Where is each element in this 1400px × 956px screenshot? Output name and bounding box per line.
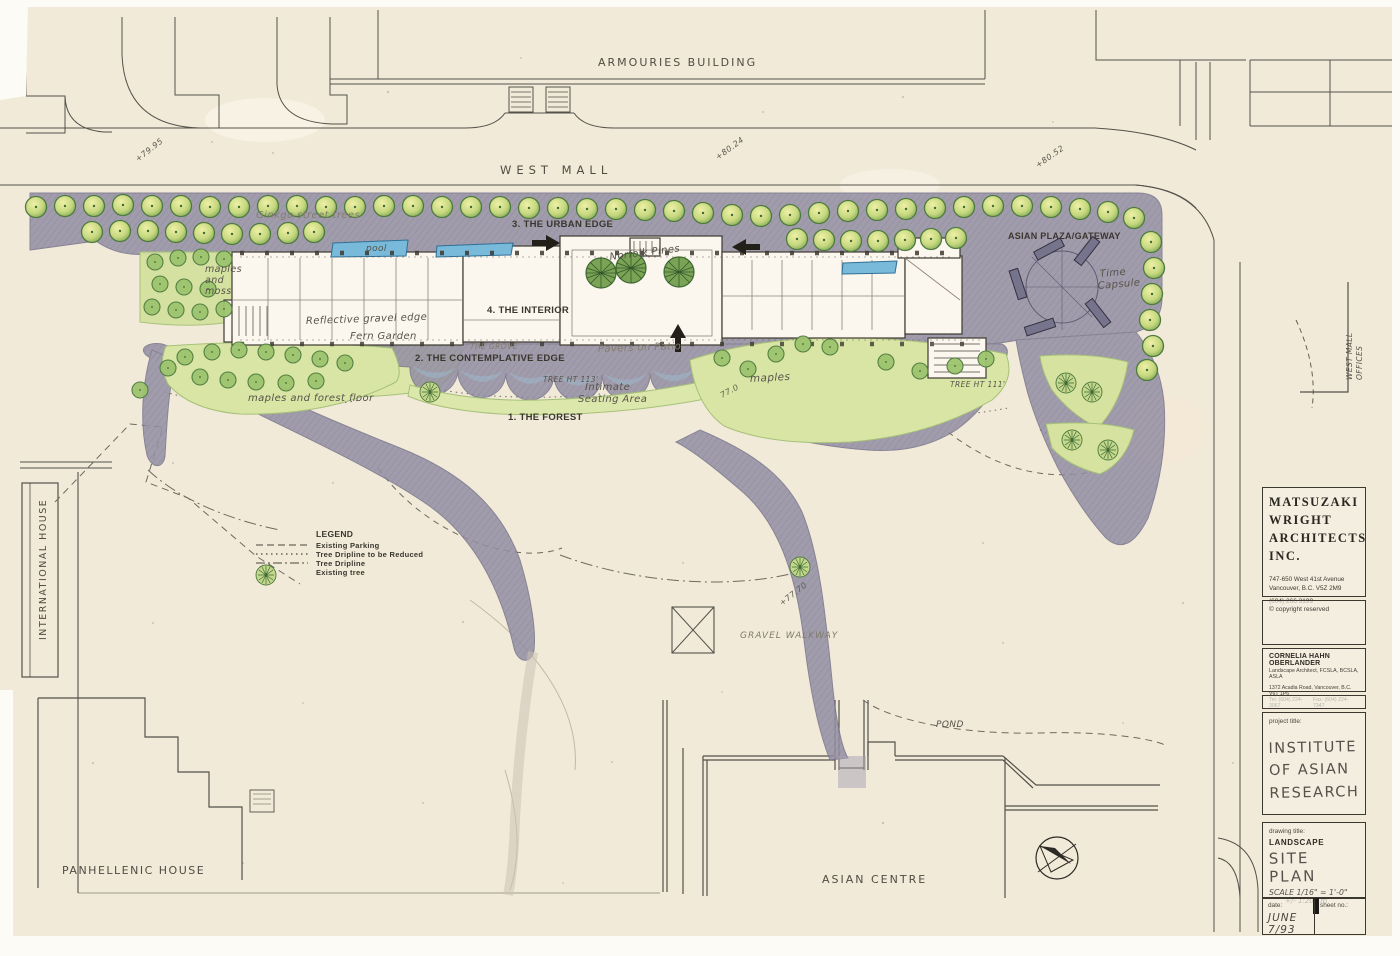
project-title-box: project title: INSTITUTE OF ASIAN RESEAR…	[1262, 712, 1366, 815]
label-west-mall-offices: OFFICES	[1355, 346, 1364, 380]
drawing-scale: SCALE 1/16" = 1'-0"	[1269, 888, 1359, 897]
label-fern-garden: Fern Garden	[350, 331, 417, 342]
label-contemplative-edge: 2. THE CONTEMPLATIVE EDGE	[415, 353, 565, 364]
plan-drawing: LEGEND Existing Parking Tree Dripline to…	[0, 0, 1400, 956]
legend-tree-icon	[256, 565, 276, 585]
sheet-number-label: sheet no.:	[1320, 902, 1360, 909]
label-intimate-seating: Seating Area	[578, 394, 647, 405]
spot-elevation: +79.95	[134, 136, 165, 163]
label-armouries-building: ARMOURIES BUILDING	[598, 56, 757, 69]
label-maples-moss: and	[205, 275, 225, 286]
firm-address-line: 747-650 West 41st Avenue	[1269, 575, 1359, 584]
label-intimate-seating: Intimate	[585, 382, 630, 393]
label-the-forest: 1. THE FOREST	[508, 412, 583, 423]
project-title-line: INSTITUTE	[1268, 736, 1358, 760]
label-gravel-walkway: GRAVEL WALKWAY	[740, 631, 839, 641]
architect-firm-box: MATSUZAKI WRIGHT ARCHITECTS INC. 747-650…	[1262, 487, 1366, 597]
firm-name-line: INC.	[1269, 547, 1359, 565]
label-tree-ht-111: TREE HT 111'	[950, 380, 1005, 389]
drawing-title-label: drawing title:	[1269, 828, 1359, 835]
plan-labels: ARMOURIES BUILDING WEST MALL Ginkgo stre…	[38, 56, 1364, 886]
project-title-label: project title:	[1269, 718, 1359, 725]
site-plan-sheet: LEGEND Existing Parking Tree Dripline to…	[0, 0, 1400, 956]
label-panhellenic-house: PANHELLENIC HOUSE	[62, 864, 205, 877]
drawing-title-box: drawing title: LANDSCAPE SITE PLAN SCALE…	[1262, 822, 1366, 898]
label-west-mall: WEST MALL	[500, 163, 612, 177]
label-asian-centre: ASIAN CENTRE	[822, 873, 927, 886]
copyright-box: © copyright reserved	[1262, 600, 1366, 645]
firm-name-line: MATSUZAKI	[1269, 493, 1359, 511]
date-label: date:	[1268, 902, 1309, 909]
north-arrow-icon	[1036, 837, 1078, 879]
sheet-number-cell: sheet no.:	[1314, 899, 1365, 934]
label-maples-forest-floor: maples and forest floor	[248, 393, 374, 404]
landscape-architect-name: CORNELIA HAHN OBERLANDER	[1269, 653, 1359, 667]
label-asian-plaza-gateway: ASIAN PLAZA/GATEWAY	[1008, 231, 1121, 241]
legend-item: Tree Dripline	[316, 559, 365, 568]
landscape-architect-box: CORNELIA HAHN OBERLANDER Landscape Archi…	[1262, 648, 1366, 692]
date-value: JUNE 7/93	[1268, 912, 1309, 936]
context-buildings-linework	[0, 10, 1392, 932]
label-the-grove: THE GROVE	[470, 342, 518, 351]
firm-address-line: Vancouver, B.C. V5Z 2M9	[1269, 584, 1359, 593]
label-urban-edge: 3. THE URBAN EDGE	[512, 219, 613, 230]
dripline-linework	[55, 385, 1165, 890]
landscape-architect-title: Landscape Architect, FCSLA, BCSLA, ASLA	[1269, 668, 1359, 680]
spot-elevation: +80.52	[1034, 144, 1066, 170]
copyright-text: © copyright reserved	[1269, 606, 1329, 613]
spacer-box	[1262, 695, 1366, 709]
drawing-title: SITE PLAN	[1269, 848, 1360, 886]
project-title-line: OF ASIAN	[1269, 759, 1359, 783]
date-sheet-box: date: JUNE 7/93 sheet no.:	[1262, 898, 1366, 935]
firm-name-line: WRIGHT	[1269, 511, 1359, 529]
label-maples-moss: moss	[205, 286, 232, 297]
firm-name-line: ARCHITECTS	[1269, 529, 1359, 547]
legend: LEGEND Existing Parking Tree Dripline to…	[256, 529, 423, 585]
label-pond: POND	[936, 720, 964, 730]
label-pool: pool	[365, 244, 387, 254]
gravel-gap	[838, 756, 866, 788]
label-interior: 4. THE INTERIOR	[487, 305, 569, 316]
drawing-series: LANDSCAPE	[1269, 838, 1359, 847]
spot-elevation: +80.24	[714, 135, 746, 161]
label-maples-moss: maples	[205, 264, 242, 275]
project-title-line: RESEARCH	[1269, 781, 1359, 805]
label-maples: maples	[750, 371, 791, 385]
legend-item: Existing tree	[316, 568, 365, 577]
legend-title: LEGEND	[316, 529, 353, 539]
label-ginkgo-street-trees: Ginkgo street trees	[256, 210, 360, 221]
date-cell: date: JUNE 7/93	[1263, 899, 1314, 934]
paper-edges	[0, 0, 1400, 956]
legend-item: Existing Parking	[316, 541, 380, 550]
title-block: MATSUZAKI WRIGHT ARCHITECTS INC. 747-650…	[1262, 479, 1374, 936]
label-west-mall-offices: WEST MALL	[1345, 333, 1354, 380]
gravel-trace	[508, 652, 533, 895]
label-international-house: INTERNATIONAL HOUSE	[38, 499, 49, 640]
legend-item: Tree Dripline to be Reduced	[316, 550, 423, 559]
